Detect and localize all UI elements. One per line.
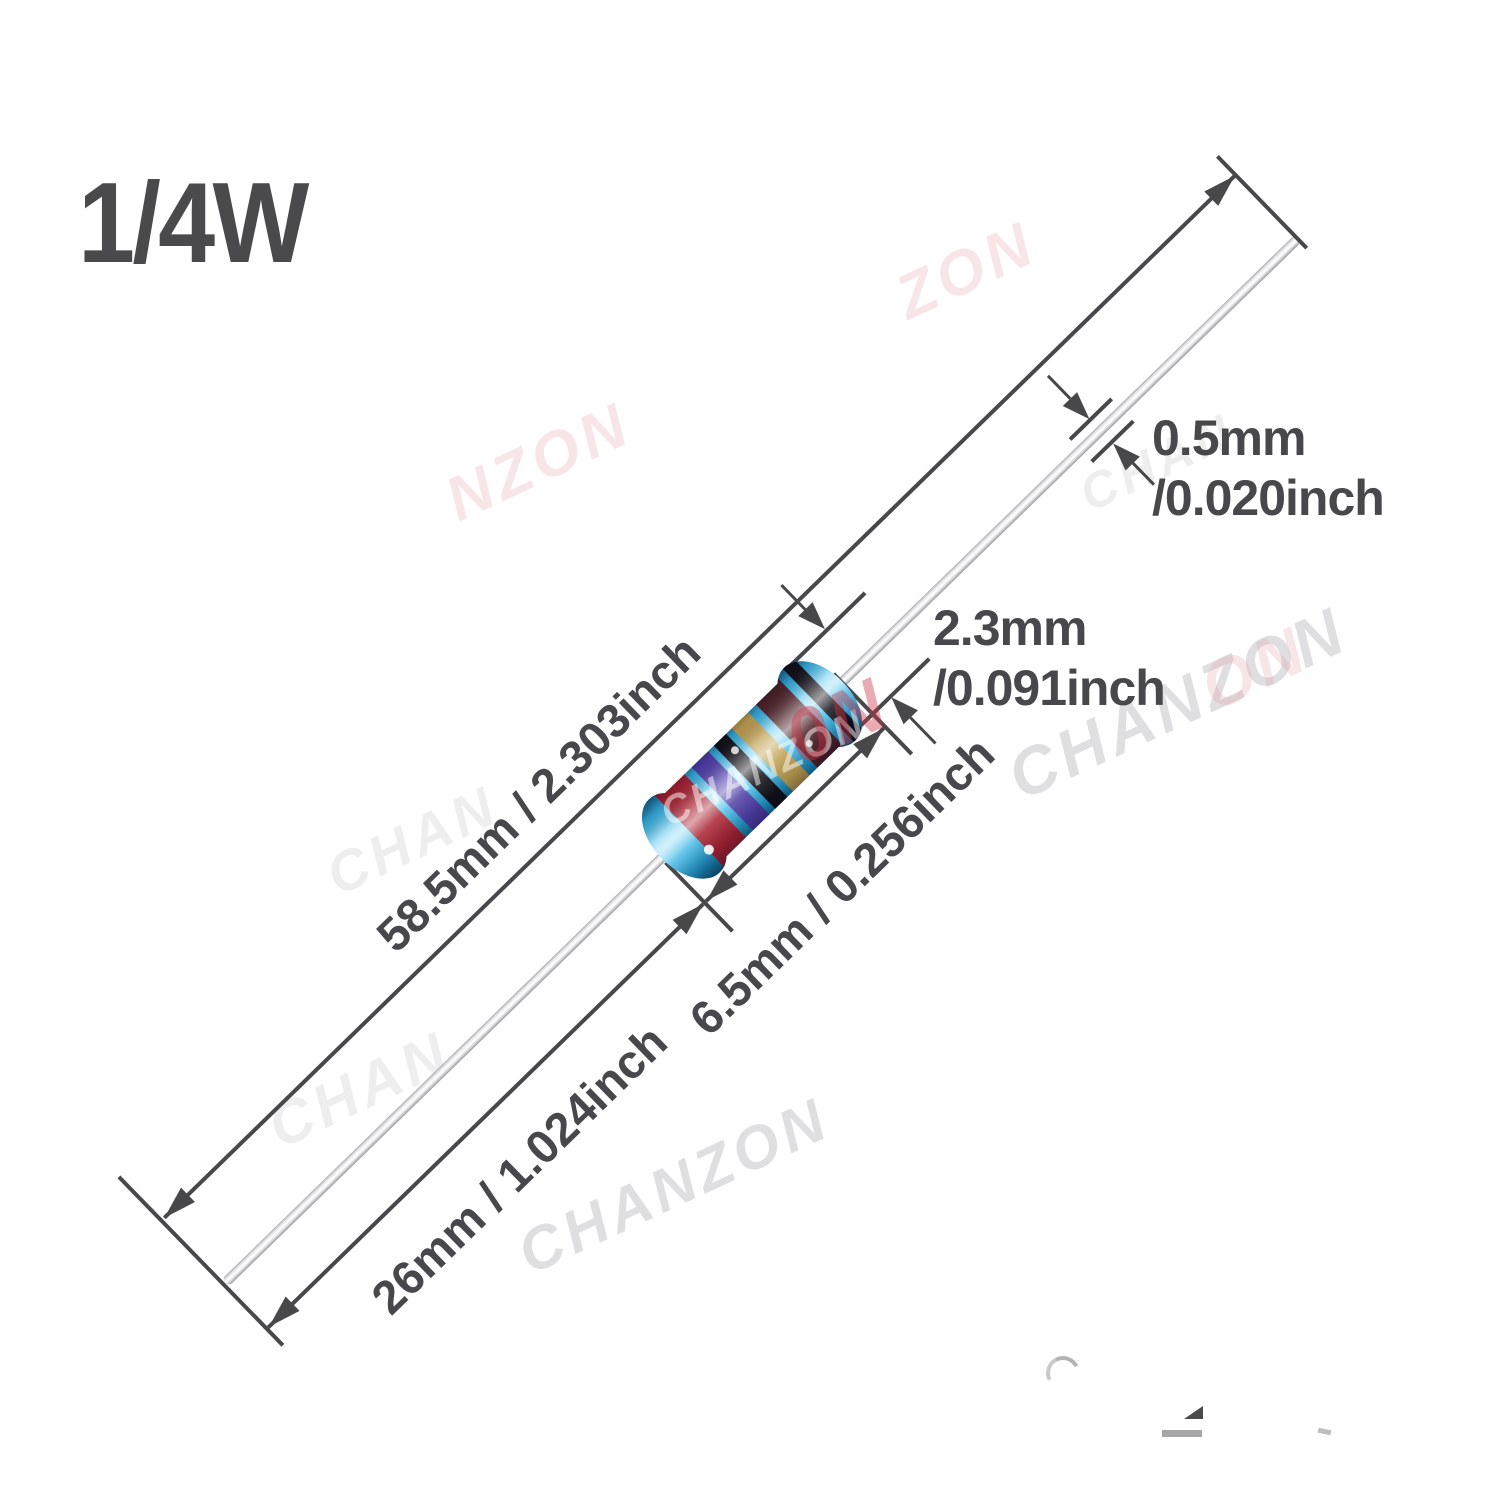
resistor-axis-group: 58.5mm / 2.303inch 26mm / 1.024inch 6.5m… [225,238,1298,1283]
arrow-stem [1047,375,1071,400]
watermark-fragment: NZON [435,389,642,536]
body-diameter-inch: /0.091inch [933,658,1165,718]
power-rating-title: 1/4W [78,158,307,289]
product-dimension-diagram: { "title": "1/4W", "labels": { "total_le… [0,0,1500,1500]
lead-diameter-inch: /0.020inch [1152,468,1384,528]
erased-watermark-dash [1162,1430,1202,1437]
erased-watermark-curve [1042,1352,1085,1395]
body-diameter-mm: 2.3mm [933,598,1165,658]
lead-diameter-mm: 0.5mm [1152,408,1384,468]
arrow-stem [909,717,936,745]
extension-tick-wire-bottom-end [118,1176,285,1347]
watermark-fragment: ON [1189,610,1320,725]
extension-tick-wire-top-end [1216,155,1308,250]
body-diameter-label: 2.3mm /0.091inch [933,598,1165,718]
lead-diameter-label: 0.5mm /0.020inch [1152,408,1384,528]
erased-watermark-triangle [1184,1406,1203,1419]
watermark-fragment: ZON [885,208,1047,334]
erased-watermark-tick [1318,1428,1332,1436]
